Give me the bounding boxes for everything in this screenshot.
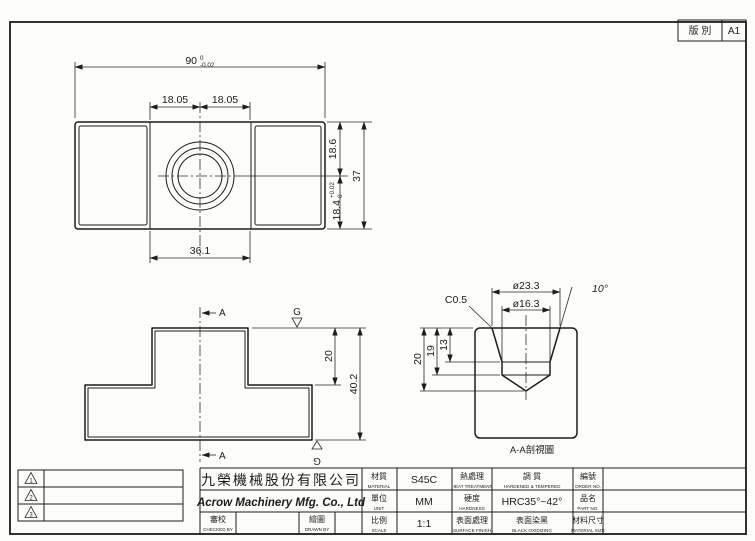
unit-value: MM — [415, 496, 433, 508]
dim-upper-height: 18.6 — [327, 139, 339, 160]
material-size-label-en: MATERIAL SIZE — [571, 528, 605, 533]
section-mark-top: A — [219, 308, 226, 319]
surface-finish-value-zh: 表面染黑 — [516, 515, 548, 525]
dim-depth-bore: 19 — [425, 345, 437, 357]
hardness-label-zh: 硬度 — [464, 493, 480, 503]
sheet-border — [10, 22, 746, 534]
scale-label-zh: 比例 — [371, 515, 387, 525]
surface-finish-label-en: SURFACE FINISH — [453, 528, 491, 533]
dim-step-height: 20 — [323, 350, 335, 362]
revision-value: A1 — [728, 26, 741, 37]
drawn-by-label-zh: 繪圖 — [309, 514, 325, 524]
dim-slot-tol-lower: 0 — [337, 194, 344, 198]
unit-label-zh: 單位 — [371, 493, 387, 503]
part-no-label-zh: 品名 — [580, 493, 596, 503]
dim-slot-tol-upper: +0.02 — [329, 182, 336, 198]
dim-hole-offset-right: 18.05 — [212, 94, 238, 106]
dim-overall-width-tol-upper: 0 — [200, 55, 204, 62]
dim-slot-width: 18.4 — [331, 200, 343, 221]
title-block: 九榮機械股份有限公司 Acrow Machinery Mfg. Co., Ltd… — [196, 468, 746, 534]
revision-table: 1 2 3 — [18, 470, 183, 521]
order-no-label-en: ORDER NO. — [575, 484, 601, 489]
scale-label-en: SCALE — [371, 528, 386, 533]
dim-overall-width: 90 — [185, 55, 197, 67]
order-no-label-zh: 編號 — [580, 471, 596, 481]
unit-label-en: UNIT — [374, 506, 385, 511]
heat-treatment-value-zh: 調 質 — [523, 471, 541, 481]
heat-treatment-value-en: HARDENED & TEMPERED — [504, 484, 562, 489]
section-view: ø23.3 ø16.3 10° C0.5 13 19 20 A-A剖視圖 — [412, 280, 608, 456]
section-caption: A-A剖視圖 — [510, 444, 554, 456]
heat-treatment-label-zh: 熱處理 — [460, 471, 484, 481]
part-no-label-en: PART NO. — [577, 506, 598, 511]
revision-label: 版 別 — [689, 24, 712, 37]
checked-by-label-zh: 審校 — [210, 514, 226, 524]
grind-mark-top: G — [293, 307, 301, 318]
grind-mark-bottom: G — [313, 455, 321, 466]
hardness-label-en: HARDNESS — [459, 506, 485, 511]
dim-total-height: 37 — [351, 170, 363, 182]
drawing-sheet: 版 別 A1 90 0 -0.02 18.05 18.05 36.1 — [0, 0, 755, 541]
dim-boss-width: 36.1 — [190, 245, 211, 257]
drawing-canvas: 版 別 A1 90 0 -0.02 18.05 18.05 36.1 — [0, 0, 755, 541]
surface-finish-label-zh: 表面處理 — [456, 515, 488, 525]
section-mark-bottom: A — [219, 451, 226, 462]
company-name-zh: 九榮機械股份有限公司 — [201, 473, 361, 489]
dim-outer-dia: ø23.3 — [513, 280, 540, 292]
dim-depth-tip: 20 — [412, 353, 424, 365]
dim-front-total-height: 40.2 — [348, 374, 360, 395]
dim-inner-dia: ø16.3 — [513, 298, 540, 310]
dim-depth-taper: 13 — [438, 339, 450, 351]
front-view: A A G G 20 40.2 — [85, 307, 366, 466]
material-value: S45C — [411, 474, 438, 486]
checked-by-label-en: CHECKED BY — [203, 527, 233, 532]
revision-box: 版 別 A1 — [678, 20, 746, 41]
dim-hole-offset-left: 18.05 — [162, 94, 188, 106]
grind-triangle-top — [292, 318, 302, 327]
dim-chamfer: C0.5 — [445, 294, 467, 306]
surface-finish-value-en: BLACK OXIDIZING — [512, 528, 552, 533]
hardness-value: HRC35°~42° — [502, 496, 563, 508]
material-size-label-zh: 材料尺寸 — [572, 515, 604, 525]
grind-triangle-bottom — [312, 441, 322, 449]
scale-value: 1:1 — [417, 518, 432, 530]
company-name-en: Acrow Machinery Mfg. Co., Ltd — [196, 497, 366, 509]
top-view: 90 0 -0.02 18.05 18.05 36.1 18.6 18.4 +0… — [75, 55, 372, 263]
heat-treatment-label-en: HEAT TREATMENT — [452, 484, 493, 489]
material-label-en: MATERIAL — [368, 484, 391, 489]
drawn-by-label-en: DRAWN BY — [305, 527, 330, 532]
material-label-zh: 材質 — [371, 471, 387, 481]
dim-taper-angle: 10° — [592, 283, 608, 295]
dim-overall-width-tol-lower: -0.02 — [200, 62, 215, 69]
